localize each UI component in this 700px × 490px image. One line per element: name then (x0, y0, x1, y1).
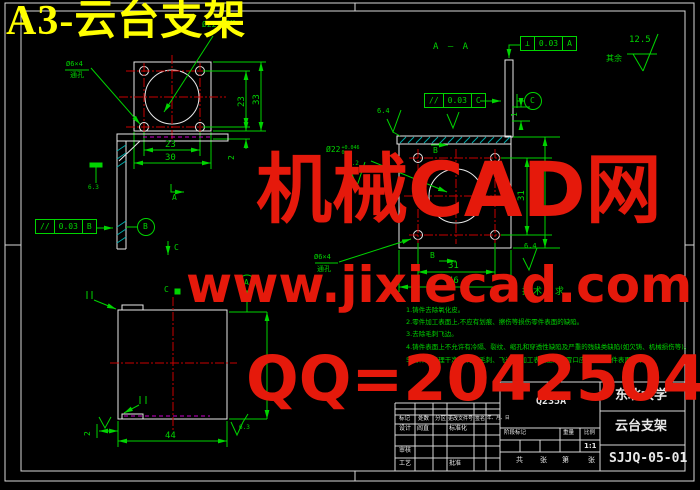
hole-callout-top-dia: Ø6×4 (66, 61, 83, 68)
tb-stage-label: 阶段标记 (504, 431, 526, 437)
dim-23-horizontal: 23 (165, 141, 176, 150)
fcf-datum-ref: B (83, 220, 96, 233)
watermark-line-3: QQ=20425042 (246, 348, 700, 410)
dim-44: 44 (165, 432, 176, 441)
section-c-label-1: C (174, 244, 179, 252)
fcf-datum-ref: A (563, 37, 576, 50)
tb-approve-label: 批准 (449, 461, 461, 467)
tb-header-mark: 标记 (399, 417, 410, 423)
roughness-top-plate: 6.4 (377, 108, 390, 115)
tb-header-sign: 签名 (475, 417, 485, 422)
roughness-leg: 6.3 (88, 185, 99, 191)
dim-2-flange: 2 (228, 155, 236, 160)
tb-designer-name: 阎直 (417, 426, 429, 432)
section-c-label-2: C (164, 286, 169, 294)
datum-c-label: C (530, 97, 535, 105)
tb-sheet-total-unit: 张 (540, 457, 547, 464)
fcf-symbol: // (36, 220, 55, 233)
view-arrow-a-label: A (172, 194, 177, 202)
tb-header-zone: 分区 (435, 417, 446, 423)
tb-sheet-no-label: 第 (562, 457, 569, 464)
fcf-symbol: // (425, 94, 444, 107)
fcf-parallel-c: // 0.03 C (424, 93, 486, 108)
watermark-line-2: www.jixiecad.com (186, 260, 692, 310)
tb-standardization-label: 标准化 (449, 426, 467, 432)
fcf-value: 0.03 (535, 37, 563, 50)
bottom-view-centerlines (110, 297, 237, 431)
fcf-datum-ref: C (472, 94, 485, 107)
fcf-value: 0.03 (444, 94, 472, 107)
fcf-symbol: ⊥ (521, 37, 535, 50)
dim-33: 33 (253, 94, 262, 105)
tb-design-label: 设计 (399, 426, 411, 432)
section-hatch (400, 137, 510, 143)
tb-scale-label: 比例 (584, 431, 595, 437)
datum-b-label: B (143, 223, 148, 231)
tb-header-date: 年、月、日 (487, 417, 510, 422)
roughness-chamfer: 6.3 (239, 425, 250, 431)
fcf-perpendicular-a: ⊥ 0.03 A (520, 36, 577, 51)
cad-drawing-sheet: { "sheet": { "title": "A3-云台支架" }, "wate… (0, 0, 700, 490)
tb-header-change-file: 更改文件号 (448, 417, 473, 422)
watermark-line-1: 机械CAD网 (256, 152, 662, 228)
tb-sheet-no-unit: 张 (588, 457, 595, 464)
tb-part-name: 云台支架 (615, 420, 667, 433)
tb-sheet-total-label: 共 (516, 457, 523, 464)
roughness-general-rest: 其余 (606, 55, 622, 63)
dim-2-bottom: 2 (84, 431, 92, 436)
sheet-title: A3-云台支架 (6, 0, 246, 42)
tb-process-label: 工艺 (399, 461, 411, 467)
dim-30: 30 (165, 154, 176, 163)
fcf-parallel-b: // 0.03 B (35, 219, 97, 234)
fcf-value: 0.03 (55, 220, 83, 233)
tech-note-2: 2.零件加工表面上,不应有划痕、擦伤等损伤零件表面的缺陷。 (406, 319, 583, 326)
dim-1: 1 (511, 112, 519, 117)
roughness-general-value: 12.5 (629, 36, 651, 45)
tb-header-count: 处数 (418, 417, 429, 423)
roughness-bottom-right: 6.4 (524, 243, 537, 250)
tb-scale-value: 1:1 (584, 443, 597, 450)
drawing-linework (0, 0, 700, 490)
tb-weight-label: 重量 (563, 431, 574, 437)
l-profile-hatch (117, 145, 126, 243)
tb-check-label: 审核 (399, 448, 411, 454)
tb-drawing-number: SJJQ-05-01 (609, 452, 687, 465)
section-aa-title: A — A (433, 43, 470, 52)
hole-callout-top-type: 通孔 (70, 72, 84, 79)
dim-23-vertical: 23 (238, 96, 247, 107)
tech-note-3: 3.去除毛刺飞边。 (406, 331, 458, 338)
